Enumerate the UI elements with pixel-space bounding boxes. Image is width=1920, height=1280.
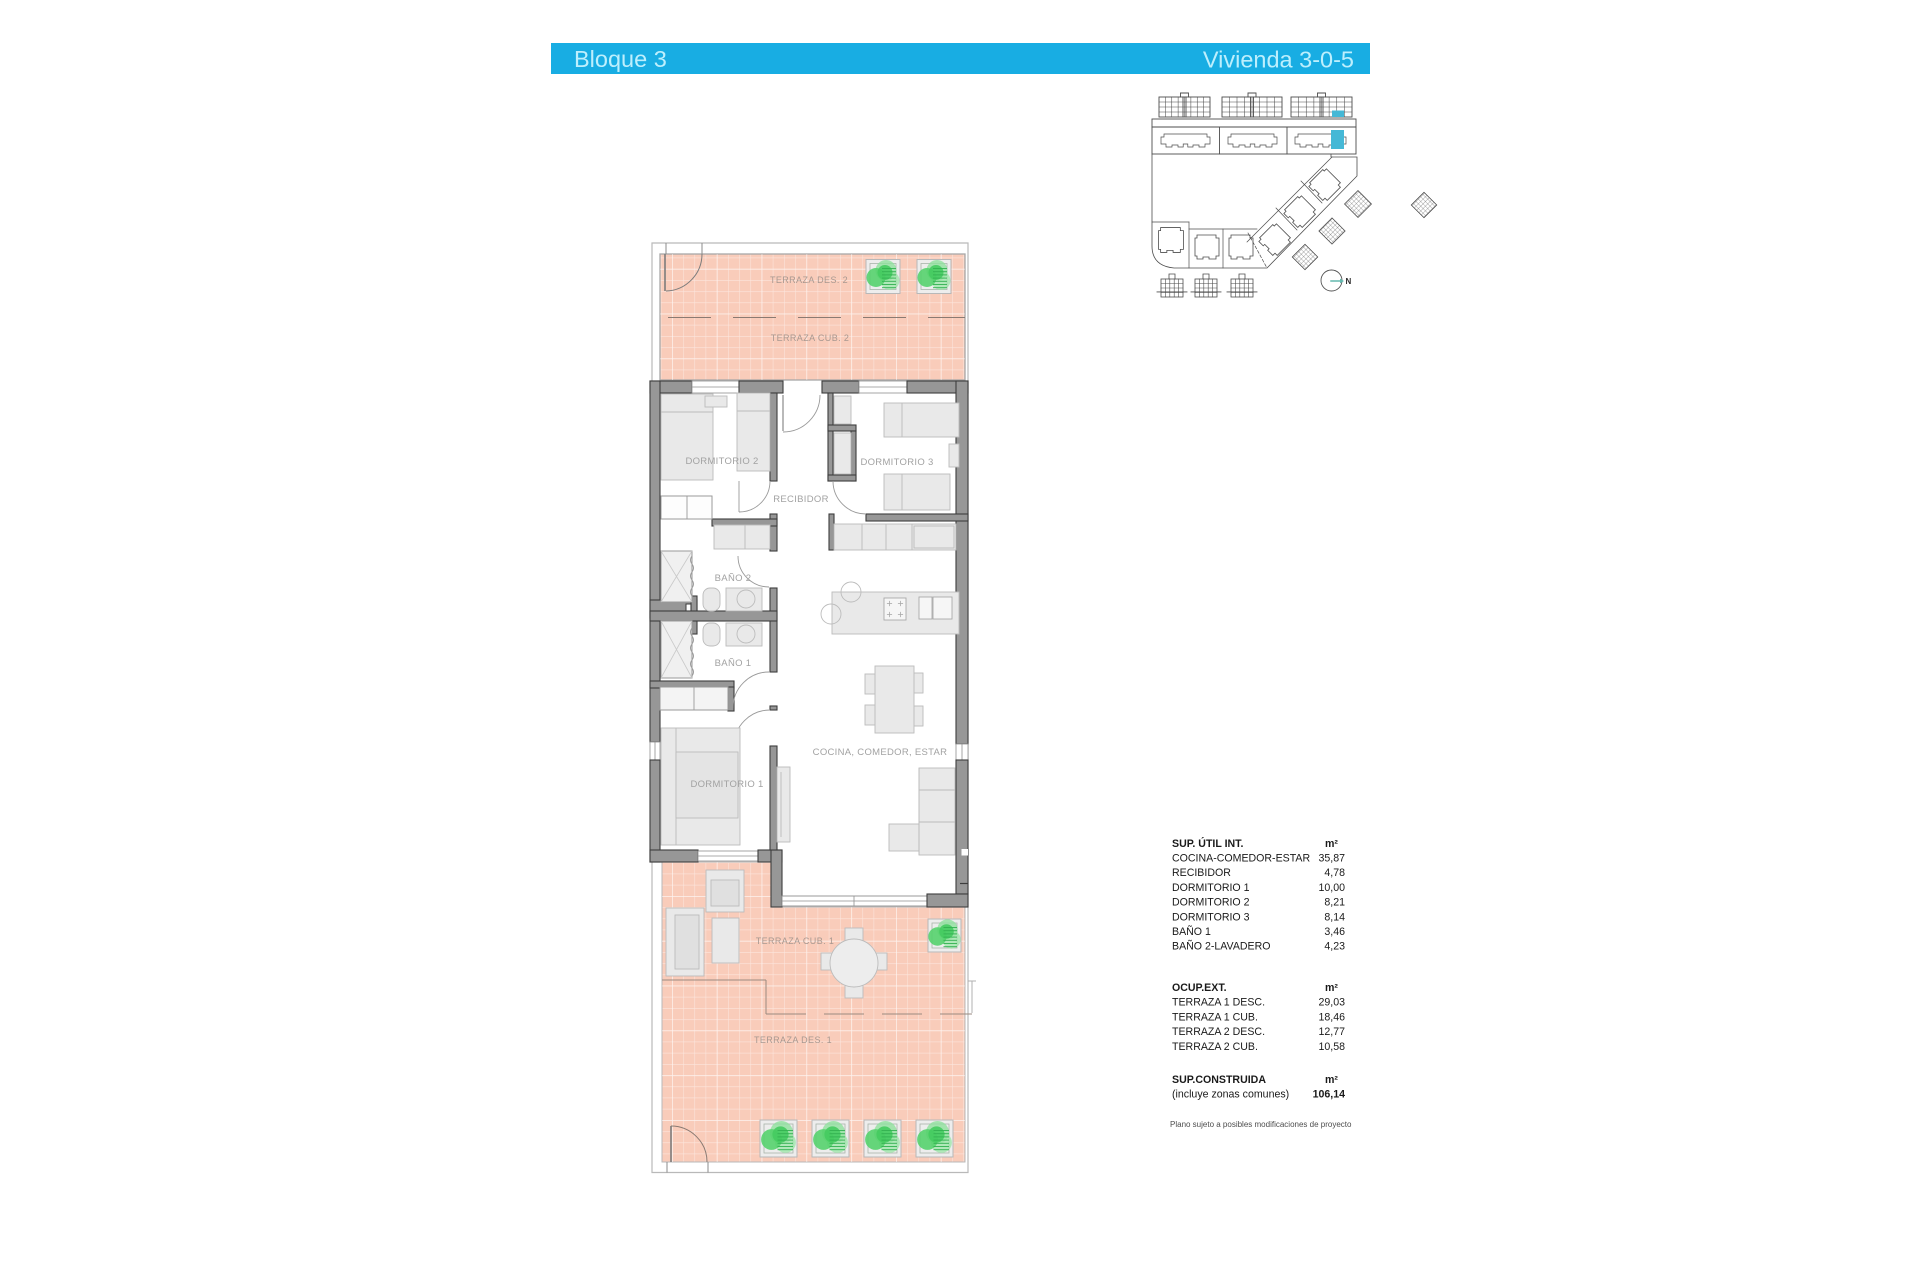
- svg-text:OCUP.EXT.: OCUP.EXT.: [1172, 982, 1227, 994]
- svg-text:10,00: 10,00: [1318, 882, 1345, 894]
- svg-text:TERRAZA DES. 2: TERRAZA DES. 2: [770, 275, 848, 285]
- svg-text:DORMITORIO 2: DORMITORIO 2: [685, 456, 758, 467]
- svg-text:BAÑO 2-LAVADERO: BAÑO 2-LAVADERO: [1172, 940, 1271, 953]
- svg-text:TERRAZA 1 CUB.: TERRAZA 1 CUB.: [1172, 1011, 1258, 1023]
- svg-text:Vivienda 3-0-5: Vivienda 3-0-5: [1203, 47, 1354, 73]
- svg-text:TERRAZA DES. 1: TERRAZA DES. 1: [754, 1035, 832, 1045]
- svg-text:Bloque 3: Bloque 3: [574, 46, 667, 72]
- svg-text:m²: m²: [1325, 1074, 1338, 1086]
- svg-text:BAÑO 1: BAÑO 1: [715, 658, 752, 669]
- svg-text:10,58: 10,58: [1318, 1041, 1345, 1053]
- svg-text:4,78: 4,78: [1324, 867, 1345, 879]
- svg-text:SUP. ÚTIL INT.: SUP. ÚTIL INT.: [1172, 837, 1243, 850]
- svg-text:COCINA-COMEDOR-ESTAR: COCINA-COMEDOR-ESTAR: [1172, 853, 1310, 865]
- svg-text:TERRAZA CUB. 2: TERRAZA CUB. 2: [771, 333, 850, 343]
- svg-text:BAÑO 1: BAÑO 1: [1172, 925, 1211, 938]
- svg-text:TERRAZA CUB. 1: TERRAZA CUB. 1: [756, 936, 835, 946]
- svg-text:BAÑO 2: BAÑO 2: [715, 573, 752, 584]
- svg-text:TERRAZA 2 CUB.: TERRAZA 2 CUB.: [1172, 1041, 1258, 1053]
- svg-text:TERRAZA 2 DESC.: TERRAZA 2 DESC.: [1172, 1026, 1265, 1038]
- svg-text:8,21: 8,21: [1324, 897, 1345, 909]
- svg-text:35,87: 35,87: [1318, 853, 1345, 865]
- svg-text:DORMITORIO 1: DORMITORIO 1: [1172, 882, 1250, 894]
- svg-text:4,23: 4,23: [1324, 941, 1345, 953]
- svg-text:12,77: 12,77: [1318, 1026, 1345, 1038]
- svg-text:m²: m²: [1325, 982, 1338, 994]
- svg-text:DORMITORIO 3: DORMITORIO 3: [860, 457, 933, 468]
- svg-text:8,14: 8,14: [1324, 911, 1345, 923]
- svg-text:N: N: [1346, 277, 1352, 286]
- svg-text:SUP.CONSTRUIDA: SUP.CONSTRUIDA: [1172, 1074, 1266, 1086]
- svg-text:m²: m²: [1325, 838, 1338, 850]
- svg-text:18,46: 18,46: [1318, 1011, 1345, 1023]
- svg-text:RECIBIDOR: RECIBIDOR: [773, 494, 828, 505]
- svg-text:3,46: 3,46: [1324, 926, 1345, 938]
- svg-text:RECIBIDOR: RECIBIDOR: [1172, 867, 1231, 879]
- svg-text:106,14: 106,14: [1313, 1089, 1346, 1101]
- svg-text:(incluye zonas comunes): (incluye zonas comunes): [1172, 1089, 1289, 1101]
- svg-text:TERRAZA 1 DESC.: TERRAZA 1 DESC.: [1172, 997, 1265, 1009]
- svg-text:29,03: 29,03: [1318, 997, 1345, 1009]
- svg-text:Plano sujeto a posibles modifi: Plano sujeto a posibles modificaciones d…: [1170, 1120, 1352, 1129]
- svg-text:DORMITORIO 3: DORMITORIO 3: [1172, 911, 1250, 923]
- svg-text:DORMITORIO 2: DORMITORIO 2: [1172, 897, 1250, 909]
- svg-text:DORMITORIO 1: DORMITORIO 1: [690, 779, 763, 790]
- svg-text:COCINA, COMEDOR, ESTAR: COCINA, COMEDOR, ESTAR: [813, 747, 948, 758]
